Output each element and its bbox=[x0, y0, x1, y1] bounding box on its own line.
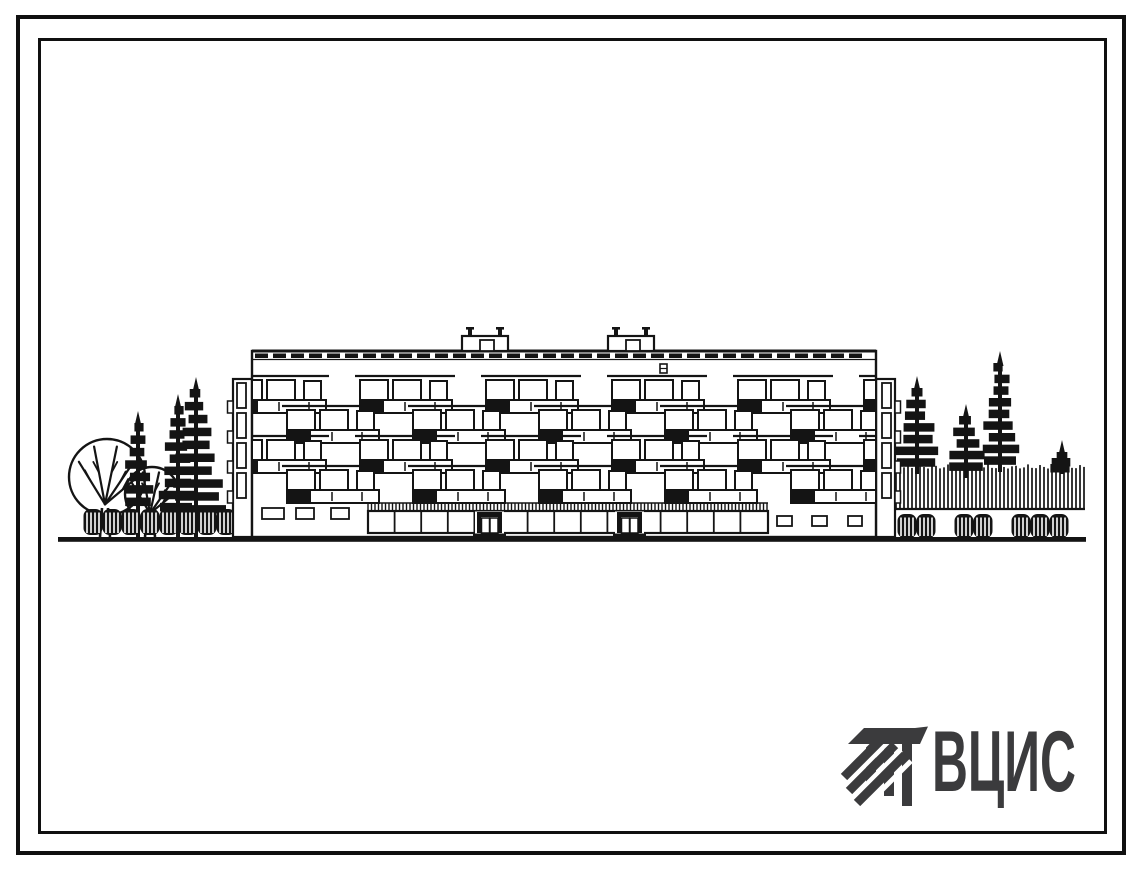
window bbox=[539, 470, 567, 491]
window bbox=[645, 380, 673, 401]
conifer-branch-layer bbox=[175, 454, 214, 463]
conifer-branch-layer bbox=[131, 435, 146, 444]
window bbox=[320, 470, 348, 491]
conifer-branch-layer bbox=[130, 448, 145, 457]
floor-row bbox=[282, 406, 886, 443]
roof-penthouse bbox=[462, 327, 508, 351]
roof-post-cap bbox=[642, 327, 650, 330]
roof-post-cap bbox=[612, 327, 620, 330]
parapet-dash bbox=[453, 354, 466, 359]
parapet-dash bbox=[507, 354, 520, 359]
window bbox=[486, 380, 514, 401]
conifer-branch-layer bbox=[993, 363, 1002, 372]
side-wing-window bbox=[237, 443, 246, 468]
window bbox=[791, 410, 819, 431]
window bbox=[665, 470, 693, 491]
side-wing bbox=[876, 379, 901, 537]
window bbox=[446, 410, 474, 431]
ground-floor-window bbox=[331, 508, 349, 519]
parapet-dash bbox=[759, 354, 772, 359]
entrance-door-leaf bbox=[622, 518, 630, 533]
roof-post bbox=[614, 329, 618, 336]
entrance-door-leaf bbox=[490, 518, 498, 533]
parapet-dash bbox=[345, 354, 358, 359]
balcony-dark-panel bbox=[665, 490, 689, 503]
side-wing-ledge bbox=[895, 431, 901, 443]
window bbox=[824, 410, 852, 431]
parapet-dash bbox=[273, 354, 286, 359]
conifer-branch-layer bbox=[989, 410, 1010, 419]
conifer-branch-layer bbox=[953, 428, 975, 437]
roof-penthouse bbox=[608, 327, 654, 351]
balcony-dark-panel bbox=[539, 490, 563, 503]
entrance-post bbox=[477, 512, 481, 533]
parapet-dash bbox=[705, 354, 718, 359]
parapet-dash bbox=[543, 354, 556, 359]
storefront-band bbox=[368, 511, 768, 533]
parapet-dash bbox=[471, 354, 484, 359]
window bbox=[824, 470, 852, 491]
window bbox=[519, 380, 547, 401]
conifer-branch-layer bbox=[994, 375, 1009, 384]
conifer-tree bbox=[949, 404, 984, 478]
parapet-dash bbox=[831, 354, 844, 359]
vcis-logo: ВЦИС bbox=[841, 714, 1076, 810]
side-wing-ledge bbox=[228, 401, 234, 413]
entrance-door-leaf bbox=[482, 518, 490, 533]
parapet-dash bbox=[777, 354, 790, 359]
entrance-transom bbox=[481, 512, 498, 517]
conifer-branch-layer bbox=[183, 428, 212, 437]
parapet-dash bbox=[291, 354, 304, 359]
ground-line bbox=[58, 537, 1086, 542]
window bbox=[738, 380, 766, 401]
window bbox=[738, 440, 766, 461]
roof-post bbox=[498, 329, 502, 336]
entrance-step bbox=[613, 534, 646, 538]
side-wing-ledge bbox=[228, 491, 234, 503]
conifer-branch-layer bbox=[125, 460, 147, 469]
roof-box-hatch bbox=[480, 340, 494, 351]
conifer-branch-layer bbox=[989, 398, 1011, 407]
roof-box-hatch bbox=[626, 340, 640, 351]
ground-floor-window bbox=[812, 516, 827, 526]
storefront bbox=[368, 511, 768, 533]
ground-line-group bbox=[58, 537, 1086, 542]
window bbox=[287, 410, 315, 431]
bush-row bbox=[898, 514, 1069, 538]
entrance-door-leaf bbox=[630, 518, 638, 533]
balcony-dark-panel bbox=[791, 490, 815, 503]
conifer-branch-layer bbox=[173, 479, 223, 488]
window bbox=[360, 440, 388, 461]
window bbox=[698, 470, 726, 491]
floor-row bbox=[282, 466, 886, 503]
conifer-branch-layer bbox=[983, 421, 1012, 430]
window bbox=[320, 410, 348, 431]
side-wing-window bbox=[882, 413, 891, 438]
parapet-dash bbox=[561, 354, 574, 359]
side-wing-window bbox=[237, 383, 246, 408]
conifer-branch-layer bbox=[170, 418, 185, 427]
window bbox=[771, 440, 799, 461]
parapet-dash bbox=[435, 354, 448, 359]
parapet-dash bbox=[579, 354, 592, 359]
parapet-dash bbox=[741, 354, 754, 359]
drawing-sheet: ВЦИС bbox=[0, 0, 1139, 869]
window bbox=[539, 410, 567, 431]
window bbox=[413, 470, 441, 491]
parapet-dash bbox=[525, 354, 538, 359]
side-wing-ledge bbox=[895, 461, 901, 473]
conifer-tree bbox=[896, 376, 938, 474]
window bbox=[698, 410, 726, 431]
window bbox=[519, 440, 547, 461]
conifer-branch-layer bbox=[170, 430, 185, 439]
tree-twig bbox=[85, 470, 91, 481]
window bbox=[486, 440, 514, 461]
parapet-dash bbox=[669, 354, 682, 359]
balcony-dark-panel bbox=[413, 490, 437, 503]
conifer-branch-layer bbox=[904, 423, 935, 432]
entrance-step bbox=[473, 534, 506, 538]
window bbox=[360, 380, 388, 401]
entrance-transom bbox=[621, 512, 638, 517]
ground-floor-window bbox=[296, 508, 314, 519]
conifer-branch-layer bbox=[189, 415, 208, 424]
conifer-branch-layer bbox=[185, 402, 203, 411]
conifer-branch-layer bbox=[174, 406, 183, 415]
side-wing-window bbox=[882, 473, 891, 498]
side-wing-window bbox=[237, 473, 246, 498]
conifer-branch-layer bbox=[994, 386, 1009, 395]
conifer-branch-layer bbox=[1050, 464, 1069, 473]
logo-beam bbox=[848, 727, 928, 745]
parapet-dash bbox=[795, 354, 808, 359]
conifer-branch-layer bbox=[906, 400, 925, 409]
window bbox=[572, 470, 600, 491]
conifer-branch-layer bbox=[176, 466, 212, 475]
window bbox=[791, 470, 819, 491]
conifer-branch-layer bbox=[175, 492, 219, 501]
parapet-dash bbox=[309, 354, 322, 359]
entrance-post bbox=[617, 512, 621, 533]
entrance bbox=[473, 512, 506, 538]
parapet-dash bbox=[723, 354, 736, 359]
window bbox=[645, 440, 673, 461]
window bbox=[612, 380, 640, 401]
vcis-logo-text: ВЦИС bbox=[932, 714, 1076, 810]
conifer-branch-layer bbox=[897, 458, 935, 467]
conifer-branch-layer bbox=[125, 485, 154, 494]
window bbox=[446, 470, 474, 491]
entrance bbox=[613, 512, 646, 538]
roof-post bbox=[468, 329, 472, 336]
building-elevation bbox=[228, 327, 960, 537]
parapet-dash bbox=[849, 354, 862, 359]
conifer-branch-layer bbox=[905, 411, 925, 420]
conifer-branch-layer bbox=[130, 473, 150, 482]
conifer-branch-layer bbox=[190, 389, 201, 398]
window-narrow bbox=[934, 381, 951, 403]
conifer-tree bbox=[1050, 440, 1070, 474]
side-wing-ledge bbox=[895, 491, 901, 503]
roof-post-cap bbox=[466, 327, 474, 330]
window bbox=[665, 410, 693, 431]
frieze-band bbox=[368, 503, 768, 511]
side-wing-window bbox=[882, 383, 891, 408]
parapet-dash bbox=[489, 354, 502, 359]
parapet-dash bbox=[255, 354, 268, 359]
window bbox=[393, 380, 421, 401]
window bbox=[267, 440, 295, 461]
conifer-branch-layer bbox=[903, 435, 932, 444]
conifer-branch-layer bbox=[125, 498, 151, 507]
parapet-dash bbox=[687, 354, 700, 359]
roof-post bbox=[644, 329, 648, 336]
side-wing-ledge bbox=[228, 461, 234, 473]
window bbox=[572, 410, 600, 431]
elevation-drawing: ВЦИС bbox=[0, 0, 1139, 869]
conifer-branch-layer bbox=[957, 439, 980, 448]
window bbox=[287, 470, 315, 491]
window bbox=[413, 410, 441, 431]
window bbox=[267, 380, 295, 401]
conifer-branch-layer bbox=[989, 433, 1015, 442]
conifer-tree bbox=[983, 351, 1019, 472]
conifer-branch-layer bbox=[983, 445, 1019, 454]
conifer-branch-layer bbox=[912, 388, 923, 397]
parapet-dash bbox=[813, 354, 826, 359]
bush-row bbox=[84, 509, 236, 535]
side-wing-ledge bbox=[895, 401, 901, 413]
ground-floor-window bbox=[777, 516, 792, 526]
side-wing-window bbox=[237, 413, 246, 438]
parapet-dash bbox=[381, 354, 394, 359]
roof-post-cap bbox=[496, 327, 504, 330]
vcis-logo-mark-icon bbox=[841, 726, 928, 809]
parapet-dash bbox=[363, 354, 376, 359]
parapet-dash bbox=[597, 354, 610, 359]
parapet-dash bbox=[633, 354, 646, 359]
parapet-dash bbox=[327, 354, 340, 359]
side-wing-ledge bbox=[228, 431, 234, 443]
conifer-branch-layer bbox=[984, 456, 1016, 465]
trees-left-group bbox=[69, 377, 236, 539]
window bbox=[771, 380, 799, 401]
conifer-branch-layer bbox=[959, 416, 971, 425]
conifer-branch-layer bbox=[949, 451, 984, 460]
conifer-branch-layer bbox=[949, 462, 983, 471]
parapet-dash bbox=[651, 354, 664, 359]
parapet-dash bbox=[615, 354, 628, 359]
conifer-branch-layer bbox=[896, 447, 938, 456]
balcony-dark-panel bbox=[287, 490, 311, 503]
conifer-branch-layer bbox=[182, 441, 209, 450]
side-wing-window bbox=[882, 443, 891, 468]
ground-floor-window bbox=[262, 508, 284, 519]
window bbox=[612, 440, 640, 461]
trees-right-group bbox=[892, 351, 1085, 538]
parapet-dash bbox=[417, 354, 430, 359]
ground-floor-window bbox=[848, 516, 862, 526]
conifer-branch-layer bbox=[134, 423, 143, 432]
parapet-dash bbox=[399, 354, 412, 359]
window bbox=[393, 440, 421, 461]
